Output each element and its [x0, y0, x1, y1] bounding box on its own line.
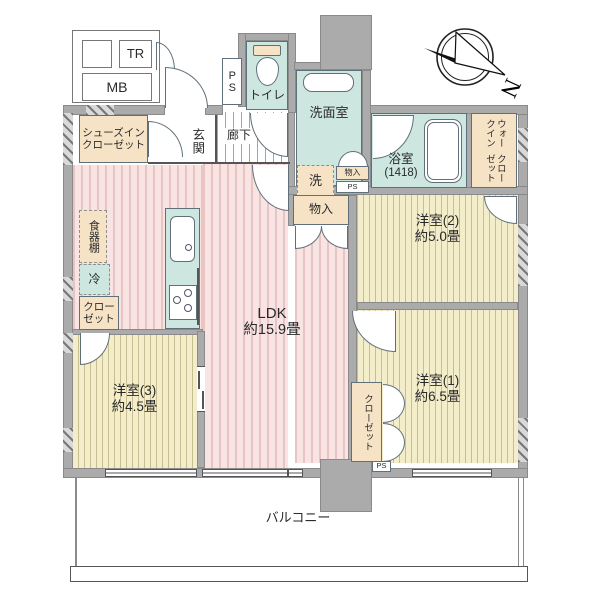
dish-shelf-label: 食器棚: [79, 212, 107, 261]
vanity-icon: [303, 73, 354, 92]
balcony-label: バルコニー: [238, 508, 358, 528]
window: [202, 469, 288, 477]
ldk-label: LDK 約15.9畳: [222, 300, 322, 344]
wall-hatch: [63, 113, 73, 165]
bedroom1-closet-label: クローゼット: [352, 384, 381, 460]
wall-top-left: [63, 105, 165, 115]
stove-burner: [184, 304, 192, 312]
genkan-label: 玄関: [188, 120, 206, 162]
genkan-corridor-divider: [215, 115, 217, 163]
shoes-in-closet-label: シューズイン クローゼット: [79, 115, 148, 163]
window: [105, 469, 197, 477]
wall-hatch: [63, 428, 73, 452]
kitchen-faucet-icon: [185, 244, 192, 251]
floor-plan: TR MB シューズイン クローゼット 玄関 廊下 PS トイレ 洗面室 洗 物…: [0, 0, 600, 600]
ldk-floor-right: [295, 226, 348, 463]
sliding-door-panel: [202, 391, 204, 409]
walk-in-closet-label: ウォークイン クローゼット: [473, 115, 515, 186]
compass-north-label: N: [495, 74, 526, 101]
stove-burner: [173, 296, 181, 304]
bedroom3-closet-label: クロー ゼット: [79, 296, 119, 330]
bath-label: 浴室 (1418): [366, 149, 436, 183]
genkan-step-line: [148, 162, 290, 164]
utility-door-arc: [156, 42, 175, 70]
shoes-closet-door-arc: [148, 121, 183, 157]
wall-hatch: [518, 224, 528, 286]
bedroom3-label: 洋室(3) 約4.5畳: [72, 378, 197, 420]
balcony-right-edge: [518, 478, 524, 568]
sliding-door-panel: [198, 371, 200, 389]
toilet-tank-icon: [253, 45, 281, 56]
ps-shaft-label: PS: [222, 60, 242, 104]
pillar-top: [320, 15, 372, 70]
toilet-label: トイレ: [244, 88, 290, 104]
entrance-door-arc: [165, 67, 208, 108]
stove-burner: [184, 289, 192, 297]
window: [288, 469, 303, 477]
bedroom3-sliding-door: [197, 366, 205, 412]
wall-hatch: [518, 418, 528, 462]
pillar-bottom: [320, 459, 372, 512]
wall-hatch: [86, 105, 114, 115]
wall-hatch: [63, 277, 73, 301]
mail-box-label: MB: [82, 73, 152, 101]
wall-hatch: [63, 333, 73, 353]
monoire-small-label: 物入: [336, 166, 369, 180]
trunk-room-label: TR: [119, 40, 152, 68]
wall-bedroom-divider: [357, 302, 518, 310]
window: [412, 469, 492, 477]
compass: N: [415, 15, 535, 120]
washer-label: 洗: [297, 165, 334, 198]
monoire-label: 物入: [293, 195, 349, 225]
utility-box: [82, 40, 112, 68]
ps-bottom-label: PS: [372, 461, 391, 472]
ps-small-label: PS: [336, 181, 369, 193]
kitchen-edge-line: [197, 268, 199, 325]
washroom-label: 洗面室: [296, 104, 362, 122]
balcony-left-edge: [75, 478, 77, 568]
kitchen-sink-icon: [170, 216, 195, 262]
wall-hatch: [518, 128, 528, 162]
balcony-railing: [70, 566, 528, 582]
corridor-label: 廊下: [221, 128, 257, 144]
fridge-label: 冷: [79, 264, 110, 295]
